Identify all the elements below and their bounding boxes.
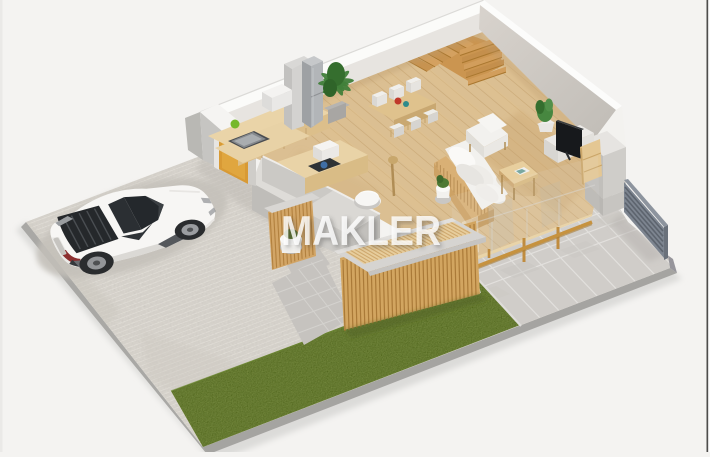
svg-text:MAKLER: MAKLER — [281, 207, 441, 254]
